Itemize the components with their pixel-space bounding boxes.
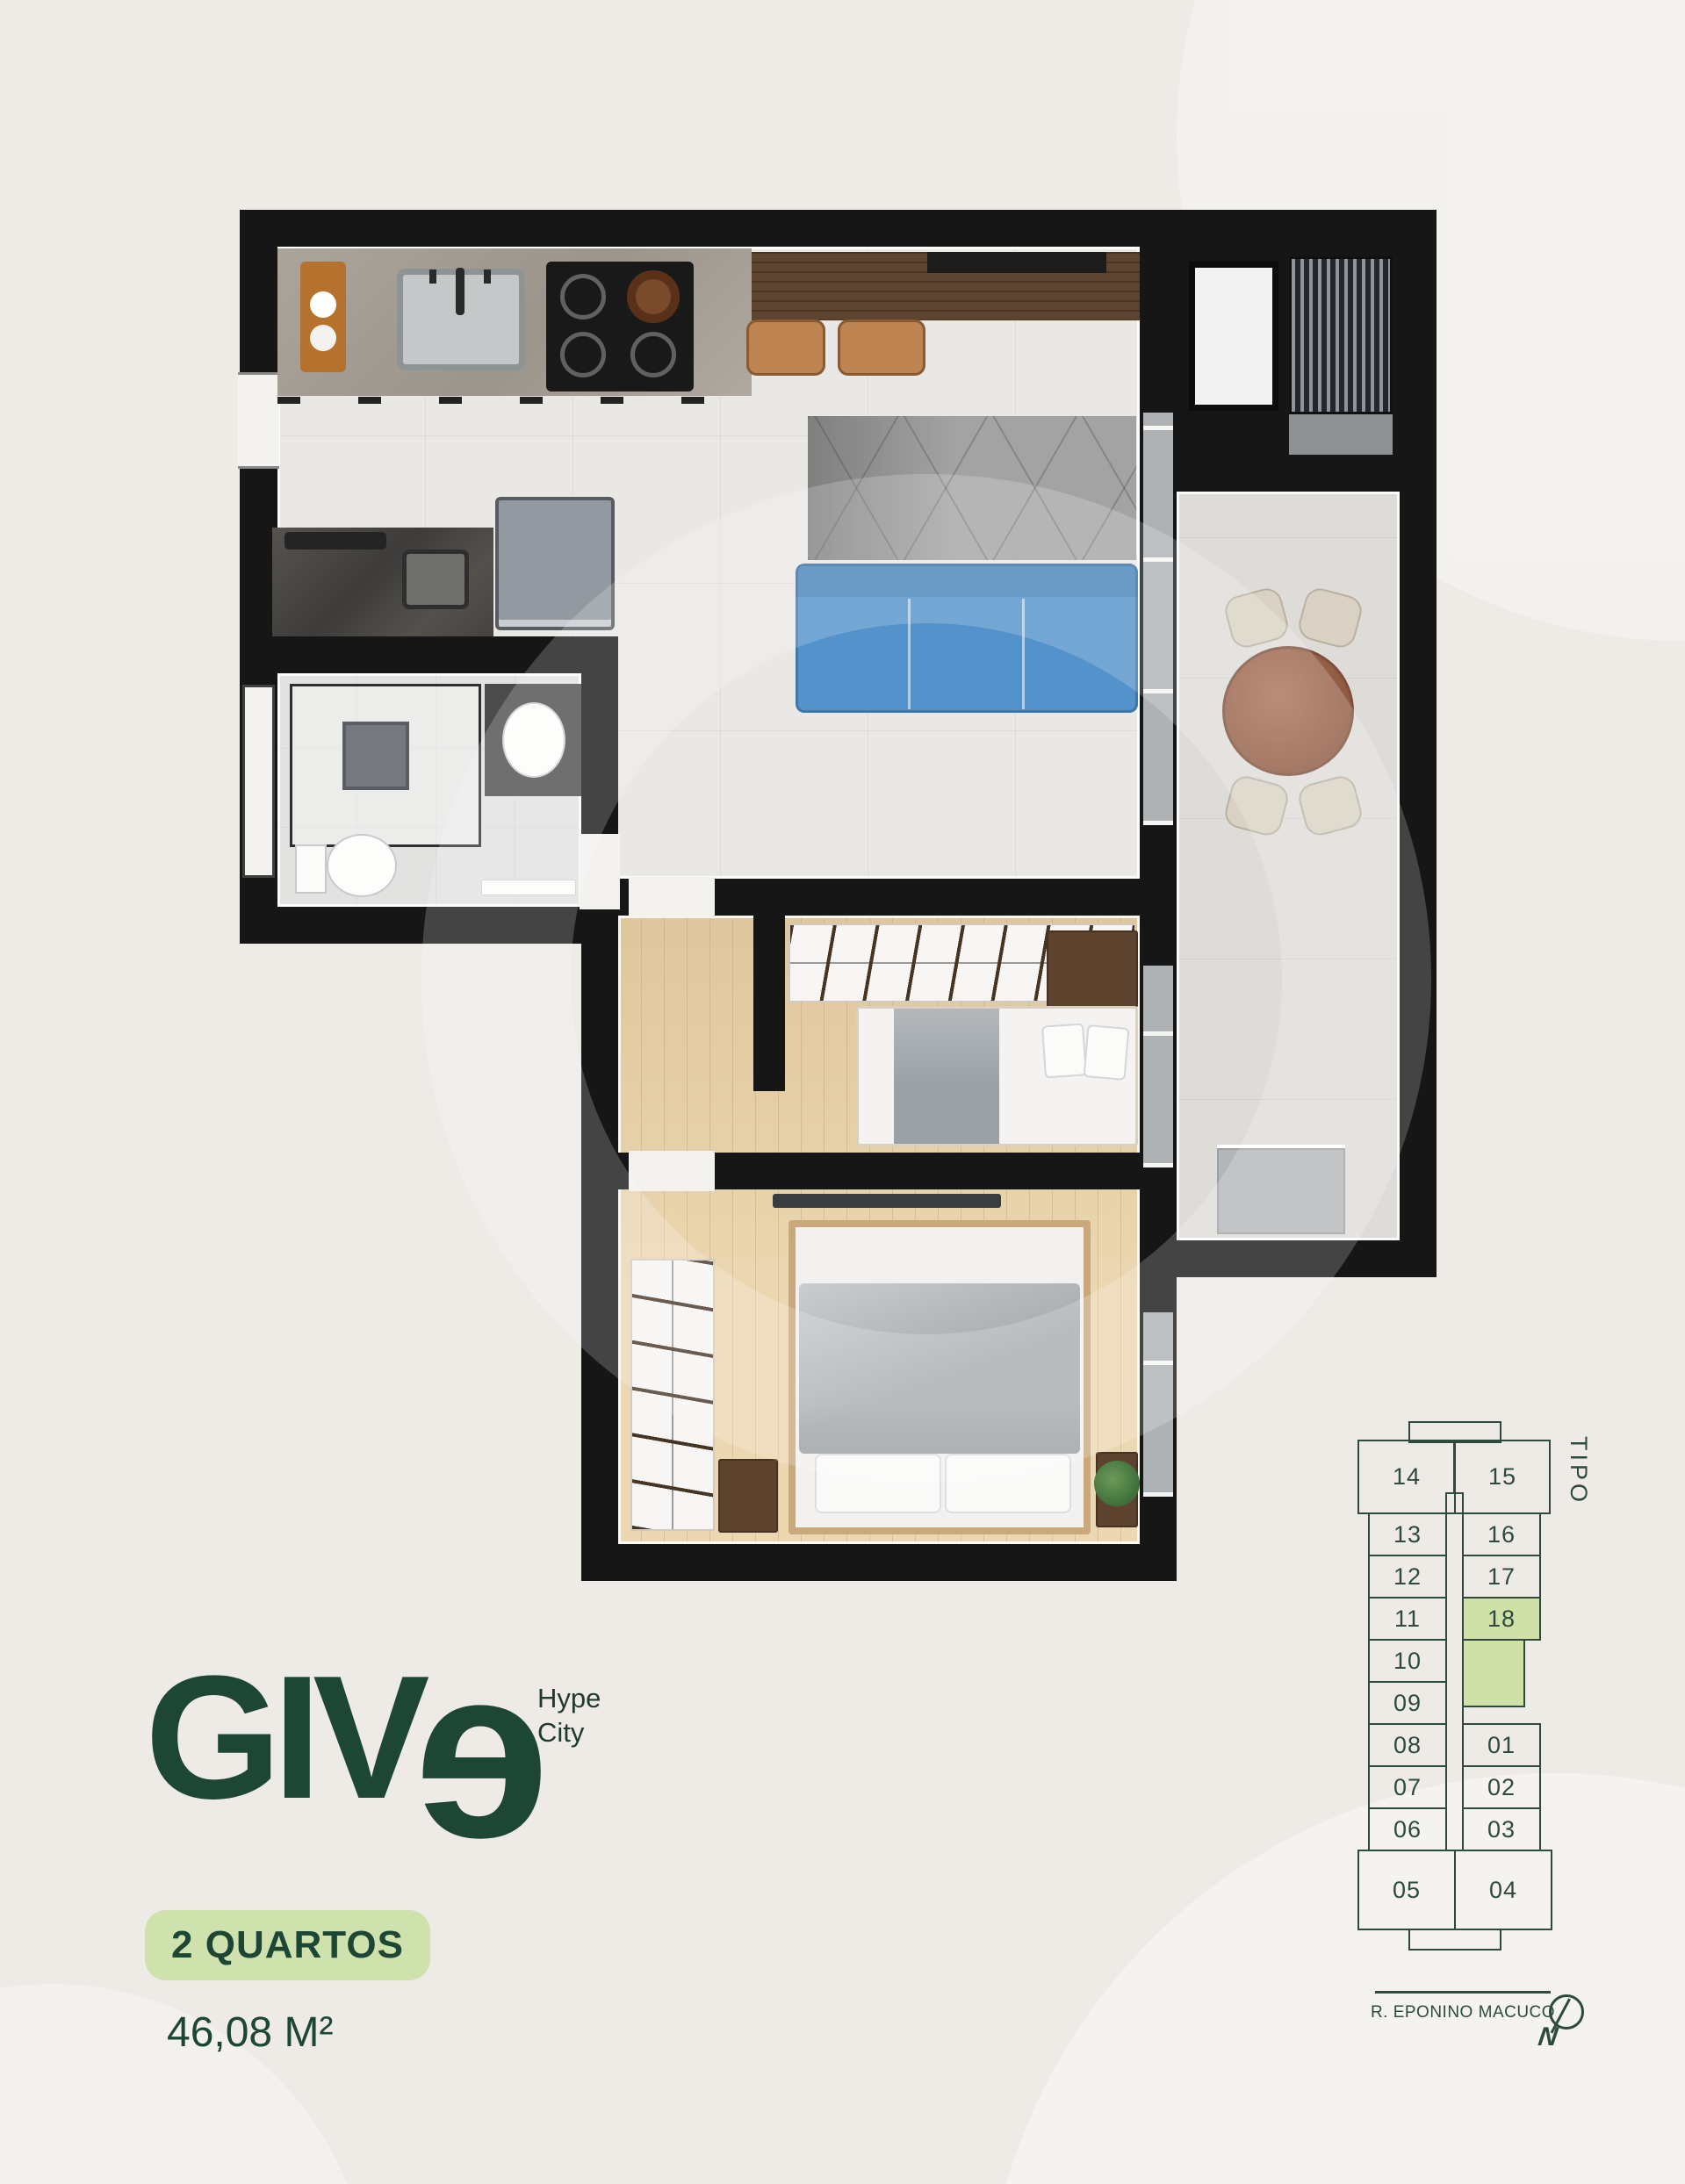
logo-e-glyph: e xyxy=(414,1689,551,1816)
wall-bottom xyxy=(581,1544,1177,1581)
ventilation-grill xyxy=(1289,256,1393,414)
burner-icon xyxy=(560,332,606,377)
unit-number: 12 xyxy=(1393,1563,1422,1591)
cutting-board xyxy=(300,262,346,372)
sofa-seat-divider xyxy=(1022,599,1025,709)
burner-icon xyxy=(630,332,676,377)
unit-number: 05 xyxy=(1393,1877,1421,1904)
bathroom-window xyxy=(242,685,275,878)
wall-right xyxy=(1400,210,1437,1277)
keyplan-unit-01: 01 xyxy=(1462,1723,1541,1767)
bedroom1-cabinet xyxy=(1047,930,1138,1008)
keyplan-corridor xyxy=(1445,1492,1464,1851)
grill-apron xyxy=(1289,414,1393,455)
sofa xyxy=(796,564,1138,713)
unit-number: 06 xyxy=(1393,1816,1422,1843)
unit-number: 15 xyxy=(1488,1463,1516,1491)
bathroom-sink xyxy=(502,702,565,778)
bedroom2-bed xyxy=(788,1220,1091,1534)
toilet-bowl xyxy=(327,834,397,897)
unit-number: 01 xyxy=(1487,1732,1516,1759)
keyplan-unit-10: 10 xyxy=(1368,1639,1447,1683)
towel-shelf xyxy=(481,880,576,895)
keyplan-unit-07: 07 xyxy=(1368,1765,1447,1809)
keyplan-unit-04: 04 xyxy=(1454,1850,1552,1930)
bowl-icon xyxy=(310,325,336,351)
unit-number: 04 xyxy=(1489,1877,1517,1904)
wall-top xyxy=(240,210,1437,247)
balcony-glass-door xyxy=(1143,413,1173,825)
balcony-floor xyxy=(1177,492,1400,1240)
keyplan-unit-17: 17 xyxy=(1462,1555,1541,1598)
keyplan-unit-05: 05 xyxy=(1357,1850,1456,1930)
bar-appliance xyxy=(927,252,1106,273)
burner-icon xyxy=(560,274,606,320)
keyplan-unit-15: 15 xyxy=(1454,1440,1551,1514)
bed1-pillow xyxy=(1083,1024,1129,1081)
wall-bathroom-bottom xyxy=(240,907,618,944)
bedroom2-door-opening xyxy=(629,1151,715,1191)
living-rug xyxy=(808,416,1136,560)
wall-bedroom-wing-left xyxy=(581,636,618,1581)
bedrooms-badge: 2 QUARTOS xyxy=(145,1910,430,1980)
unit-number: 14 xyxy=(1393,1463,1421,1491)
logo-tagline: Hype City xyxy=(537,1682,601,1750)
keyplan-unit-06: 06 xyxy=(1368,1807,1447,1851)
compass-north-label: N xyxy=(1537,2022,1559,2052)
bed1-pillow xyxy=(1041,1023,1087,1078)
bathroom-door-opening xyxy=(580,834,620,909)
bedroom1-bed xyxy=(856,1006,1138,1146)
unit-number: 07 xyxy=(1393,1774,1422,1801)
wall-bedroom1-left xyxy=(753,916,785,1091)
cooktop xyxy=(546,262,694,392)
bedroom2-tv xyxy=(773,1194,1001,1208)
logo-giv-text: GIV xyxy=(145,1672,421,1804)
keyplan-tipo-label: TIPO xyxy=(1565,1436,1592,1505)
bed2-pillow xyxy=(945,1454,1071,1513)
pan-on-burner xyxy=(627,270,680,323)
keyplan-unit-18-extension xyxy=(1462,1639,1525,1707)
faucet-handle-icon xyxy=(429,269,436,284)
page: GIV e Hype City 2 QUARTOS 46,08 M² 14 13… xyxy=(0,0,1685,2184)
toilet-tank xyxy=(295,844,327,894)
logo: GIV e xyxy=(145,1672,550,1804)
balcony-bench xyxy=(1217,1145,1345,1234)
shaft-equipment-box xyxy=(1189,262,1278,411)
unit-number: 08 xyxy=(1393,1732,1422,1759)
unit-number: 11 xyxy=(1394,1606,1421,1633)
keyplan-unit-16: 16 xyxy=(1462,1512,1541,1556)
keyplan-unit-03: 03 xyxy=(1462,1807,1541,1851)
keyplan-unit-12: 12 xyxy=(1368,1555,1447,1598)
balcony-table xyxy=(1222,646,1354,776)
street-line xyxy=(1375,1991,1551,1994)
bedroom1-door-opening xyxy=(629,877,715,917)
bed1-blanket xyxy=(894,1009,999,1144)
appliance-box xyxy=(495,497,615,630)
faucet-handle-icon xyxy=(484,269,491,284)
wall-balcony-bottom xyxy=(1140,1240,1437,1277)
wall-bathroom-top xyxy=(240,636,618,673)
keyplan-unit-13: 13 xyxy=(1368,1512,1447,1556)
entry-door-opening xyxy=(238,372,279,469)
bar-stool xyxy=(838,320,925,376)
kitchen-sink xyxy=(397,269,525,370)
keyplan-unit-14: 14 xyxy=(1357,1440,1456,1514)
unit-number: 13 xyxy=(1393,1521,1422,1548)
shower-drain xyxy=(342,722,409,790)
unit-number: 02 xyxy=(1487,1774,1516,1801)
unit-number: 17 xyxy=(1487,1563,1516,1591)
keyplan-unit-02: 02 xyxy=(1462,1765,1541,1809)
bar-stool xyxy=(746,320,825,376)
tagline-line1: Hype xyxy=(537,1682,601,1716)
bedroom2-wardrobe xyxy=(630,1259,715,1531)
support-sink xyxy=(402,550,469,609)
bedrooms-badge-label: 2 QUARTOS xyxy=(171,1923,404,1967)
bowl-icon xyxy=(310,291,336,318)
keyplan-unit-18-highlighted: 18 xyxy=(1462,1597,1541,1641)
keyplan-bottom-notch xyxy=(1408,1929,1501,1951)
wall-shaft-bottom xyxy=(1172,455,1400,492)
bed2-pillow xyxy=(815,1454,941,1513)
keyplan-unit-11: 11 xyxy=(1368,1597,1447,1641)
keyplan-unit-09: 09 xyxy=(1368,1681,1447,1725)
tagline-line2: City xyxy=(537,1716,601,1750)
faucet-icon xyxy=(456,268,464,315)
unit-number: 10 xyxy=(1393,1648,1422,1675)
wood-bar-counter xyxy=(752,252,1140,320)
bedroom2-window xyxy=(1143,1312,1173,1497)
unit-number: 03 xyxy=(1487,1816,1516,1843)
bedroom1-window xyxy=(1143,966,1173,1167)
unit-number: 09 xyxy=(1393,1690,1422,1717)
bedroom2-nightstand-left xyxy=(718,1459,778,1533)
unit-area-label: 46,08 M² xyxy=(167,2008,333,2057)
unit-number: 18 xyxy=(1487,1606,1516,1633)
bed2-duvet xyxy=(799,1283,1080,1454)
street-label: R. EPONINO MACUCO xyxy=(1366,2003,1559,2022)
plant-icon xyxy=(1094,1461,1140,1506)
kitchen-counter-edge-ticks xyxy=(277,397,752,404)
watermark-blob-bottom-right xyxy=(983,1773,1685,2184)
sofa-seat-divider xyxy=(908,599,911,709)
unit-number: 16 xyxy=(1487,1521,1516,1548)
keyplan-unit-08: 08 xyxy=(1368,1723,1447,1767)
utensil-tray xyxy=(284,532,386,550)
